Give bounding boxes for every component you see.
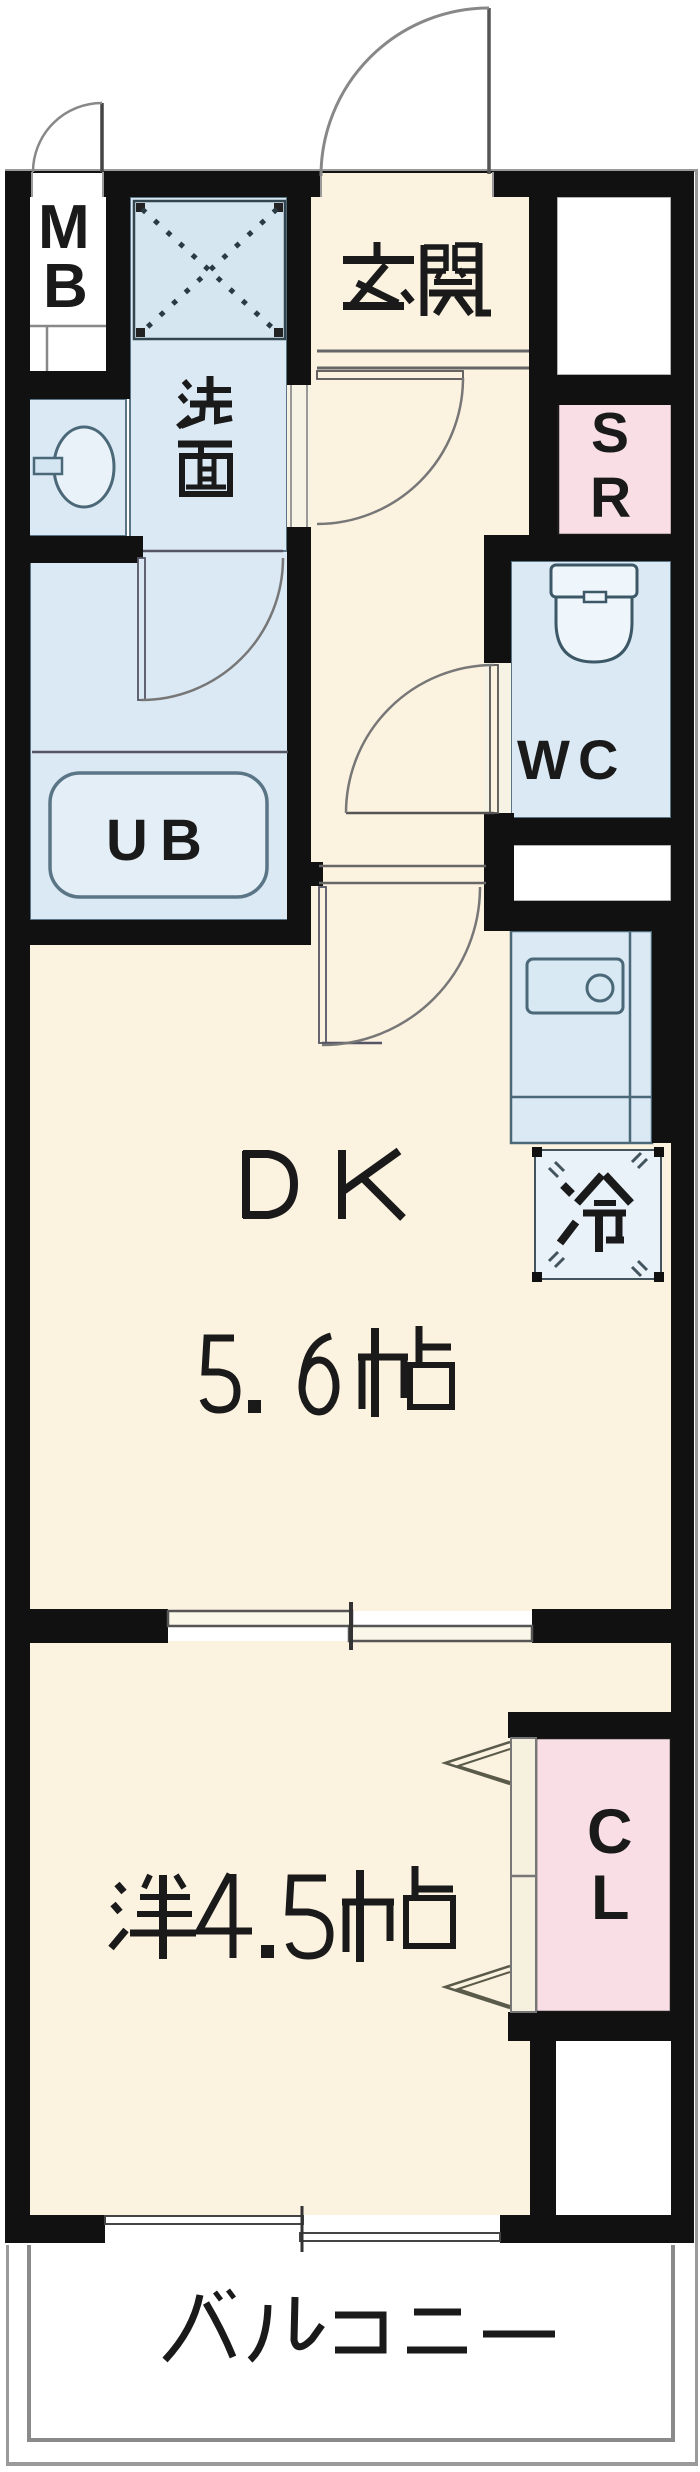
svg-text:B: B — [43, 252, 88, 321]
svg-text:L: L — [591, 1863, 629, 1933]
svg-text:W: W — [517, 728, 570, 791]
svg-text:C: C — [578, 728, 618, 791]
svg-text:B: B — [160, 808, 202, 873]
svg-text:R: R — [590, 466, 631, 530]
svg-text:S: S — [591, 401, 629, 465]
svg-text:U: U — [106, 808, 148, 873]
svg-text:C: C — [587, 1797, 633, 1867]
